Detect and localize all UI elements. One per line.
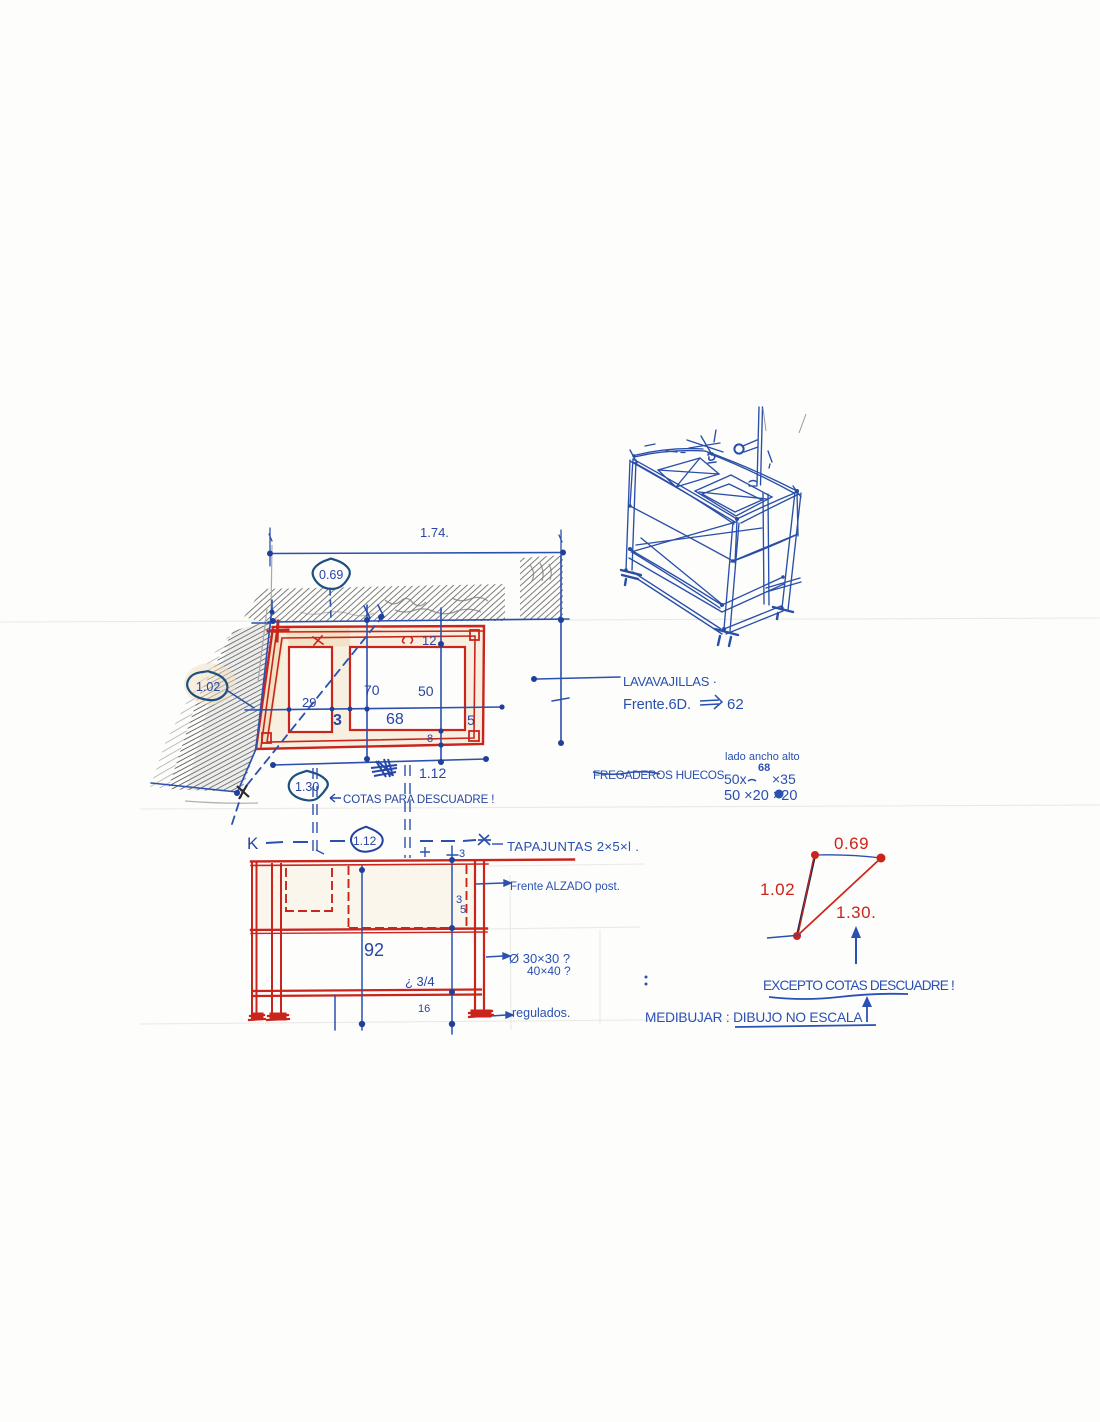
svg-text:70: 70 <box>364 682 380 698</box>
svg-text:0.69: 0.69 <box>834 834 869 853</box>
svg-text:68: 68 <box>758 762 770 774</box>
svg-text:8: 8 <box>427 733 433 745</box>
svg-text:EXCEPTO COTAS DESCUADRE !: EXCEPTO COTAS DESCUADRE ! <box>763 978 954 993</box>
svg-text:16: 16 <box>418 1003 430 1015</box>
svg-text:3: 3 <box>333 712 342 729</box>
svg-text:5: 5 <box>460 904 466 916</box>
svg-text:MEDIBUJAR : DIBUJO NO ESCALA: MEDIBUJAR : DIBUJO NO ESCALA <box>645 1010 863 1025</box>
svg-text:68: 68 <box>386 711 404 728</box>
svg-text:50: 50 <box>418 683 434 699</box>
svg-text:5: 5 <box>467 712 475 728</box>
svg-text:62: 62 <box>727 696 744 713</box>
svg-text:50 ×20 ×20: 50 ×20 ×20 <box>724 788 797 804</box>
svg-text:1.02: 1.02 <box>760 880 795 899</box>
svg-text:COTAS PARA DESCUADRE !: COTAS PARA DESCUADRE ! <box>343 794 494 806</box>
svg-text:K: K <box>247 834 259 853</box>
svg-text:1.02: 1.02 <box>196 680 220 694</box>
svg-text:1.30: 1.30 <box>295 780 319 794</box>
svg-text:×35: ×35 <box>772 771 796 787</box>
svg-text:3: 3 <box>459 848 465 860</box>
svg-text:40×40 ?: 40×40 ? <box>527 964 571 978</box>
svg-text:92: 92 <box>364 940 384 960</box>
svg-text:¿ 3/4: ¿ 3/4 <box>405 974 435 989</box>
svg-text:1.30.: 1.30. <box>836 903 876 922</box>
svg-text:1.74.: 1.74. <box>420 525 449 540</box>
svg-text:1.12: 1.12 <box>353 834 377 848</box>
svg-text:0.69: 0.69 <box>319 568 343 582</box>
svg-text:regulados.: regulados. <box>512 1006 570 1020</box>
svg-text:TAPAJUNTAS 2×5×l .: TAPAJUNTAS 2×5×l . <box>507 839 639 854</box>
svg-text:Frente ALZADO post.: Frente ALZADO post. <box>510 881 620 893</box>
svg-text:1.12: 1.12 <box>419 765 446 781</box>
svg-text:Frente.6D.: Frente.6D. <box>623 697 691 713</box>
svg-text:50x: 50x <box>724 771 747 787</box>
svg-text:12: 12 <box>422 633 436 648</box>
svg-text:29: 29 <box>302 695 316 710</box>
svg-text:LAVAVAJILLAS ·: LAVAVAJILLAS · <box>623 674 717 689</box>
